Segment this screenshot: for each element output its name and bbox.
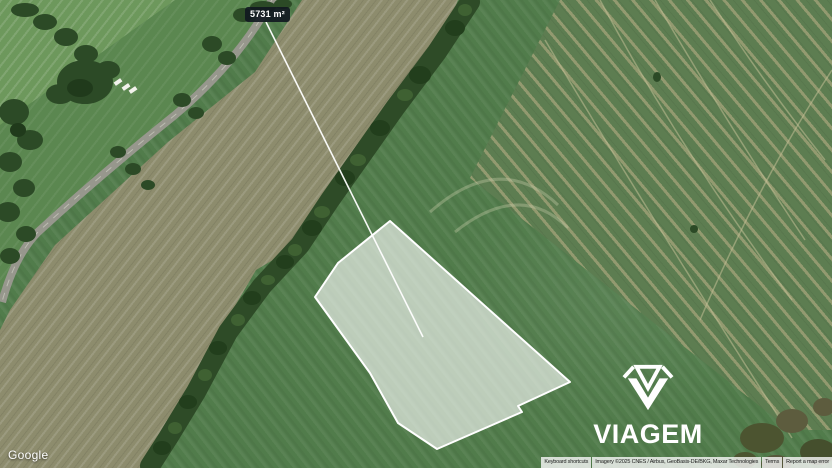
keyboard-shortcuts-link[interactable]: Keyboard shortcuts xyxy=(541,457,591,468)
parcel-polygon[interactable] xyxy=(315,221,570,449)
viagem-watermark: VIAGEM xyxy=(582,362,714,450)
viagem-brand-text: VIAGEM xyxy=(582,419,714,450)
google-logo[interactable]: Google xyxy=(8,448,49,462)
headland-tracks xyxy=(430,179,568,232)
lone-trees xyxy=(653,72,698,233)
report-map-error-link[interactable]: Report a map error xyxy=(783,457,832,468)
terms-link[interactable]: Terms xyxy=(762,457,782,468)
road xyxy=(2,0,274,302)
attribution-bar: Keyboard shortcuts Imagery ©2025 CNES / … xyxy=(541,457,832,468)
area-label: 5731 m² xyxy=(245,7,290,22)
parked-vehicles xyxy=(114,78,138,94)
imagery-attribution: Imagery ©2025 CNES / Airbus, GeoBasis-DE… xyxy=(592,457,761,468)
gem-icon xyxy=(619,362,677,412)
map-canvas[interactable]: 5731 m² VIAGEM Google Keyboard shortcuts… xyxy=(0,0,832,468)
